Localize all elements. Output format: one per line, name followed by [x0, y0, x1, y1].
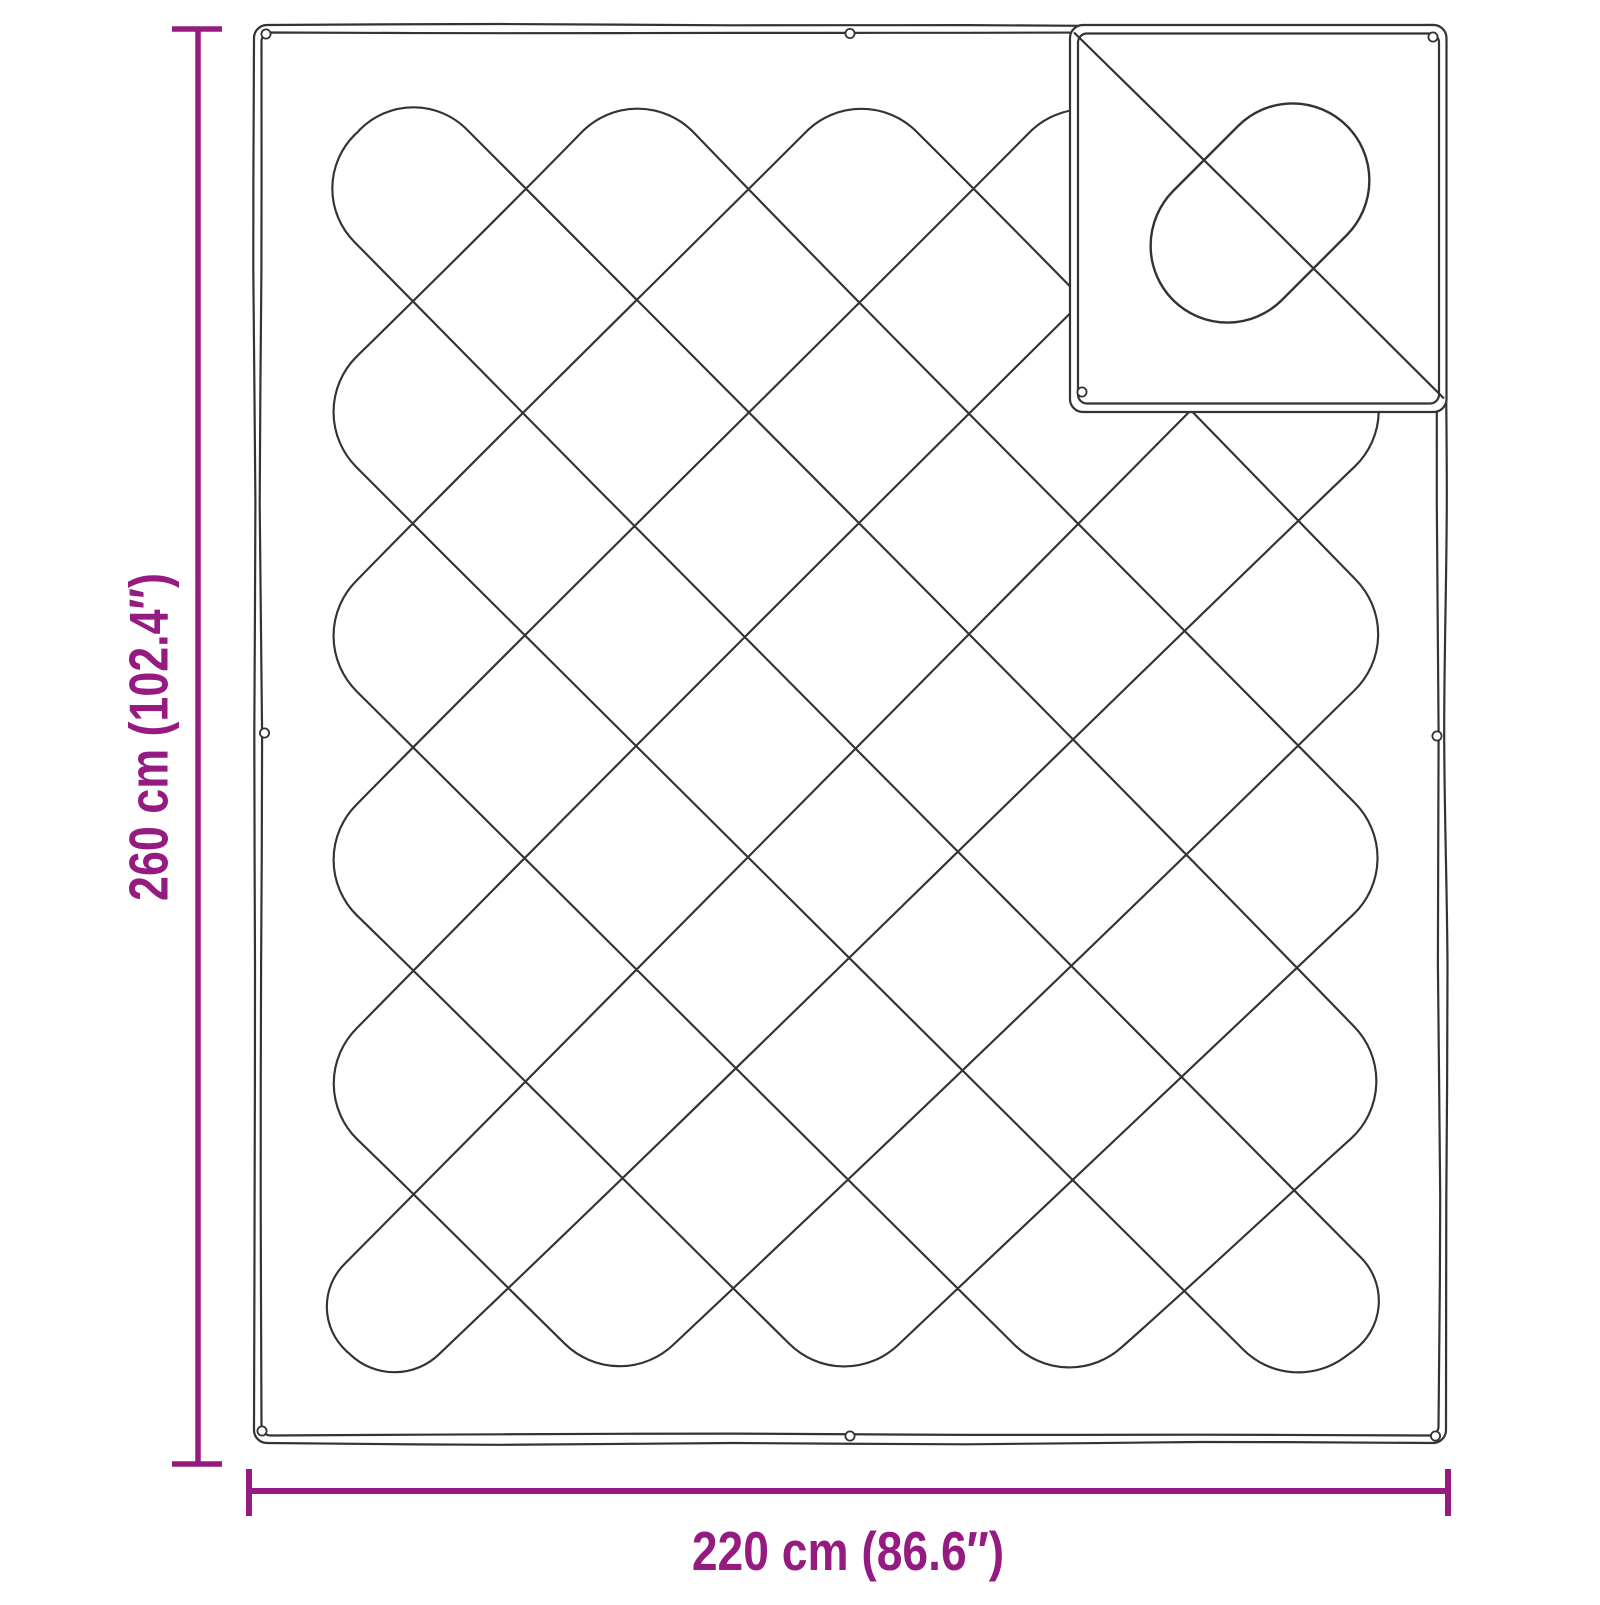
svg-text:220 cm (86.6″): 220 cm (86.6″) [692, 1520, 1004, 1582]
svg-text:260 cm (102.4″): 260 cm (102.4″) [118, 573, 179, 901]
